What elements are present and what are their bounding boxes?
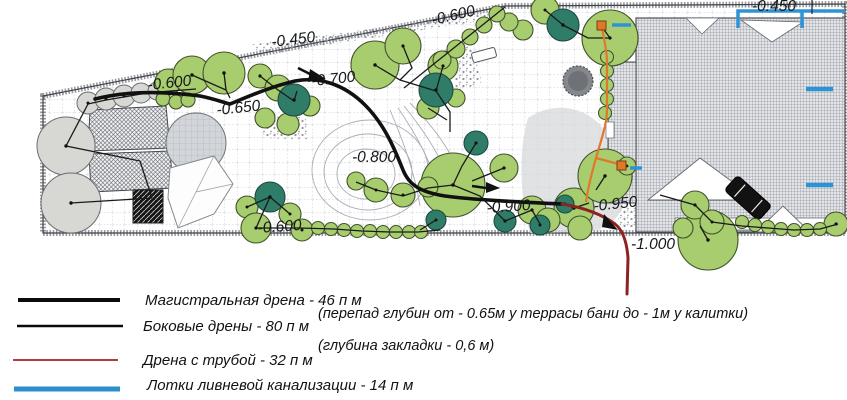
- depth-label: -0.900: [486, 197, 531, 217]
- depth-label: -0.450: [752, 0, 796, 15]
- drainage-plan: -0.450 -0.600 -0.600 -0.650 -0.700 -0.80…: [0, 0, 847, 400]
- legend-label-side-drains: Боковые дрены - 80 п м: [143, 318, 309, 335]
- well: [563, 66, 593, 96]
- garden-bed: [89, 151, 173, 192]
- pipe-inlet-box: [617, 161, 626, 170]
- annex-porch: [606, 122, 614, 138]
- compost-square: [133, 190, 163, 223]
- legend-note-depth-laying: (глубина закладки - 0,6 м): [318, 338, 494, 354]
- legend-label-storm-gutters: Лотки ливневой канализации - 14 п м: [146, 377, 413, 394]
- depth-label: -1.000: [631, 236, 675, 253]
- legend-label-pipe-drain: Дрена с трубой - 32 п м: [141, 352, 313, 369]
- legend-note-depths: (перепад глубин от - 0.65м у террасы бан…: [318, 306, 748, 322]
- depth-label: -0.600: [257, 217, 302, 237]
- depth-label: -0.800: [352, 149, 396, 166]
- garden-bed: [88, 106, 170, 151]
- bath-house: [606, 18, 845, 232]
- pipe-inlet-box: [597, 21, 606, 30]
- legend: Магистральная дрена - 46 п м (перепад гл…: [13, 292, 748, 394]
